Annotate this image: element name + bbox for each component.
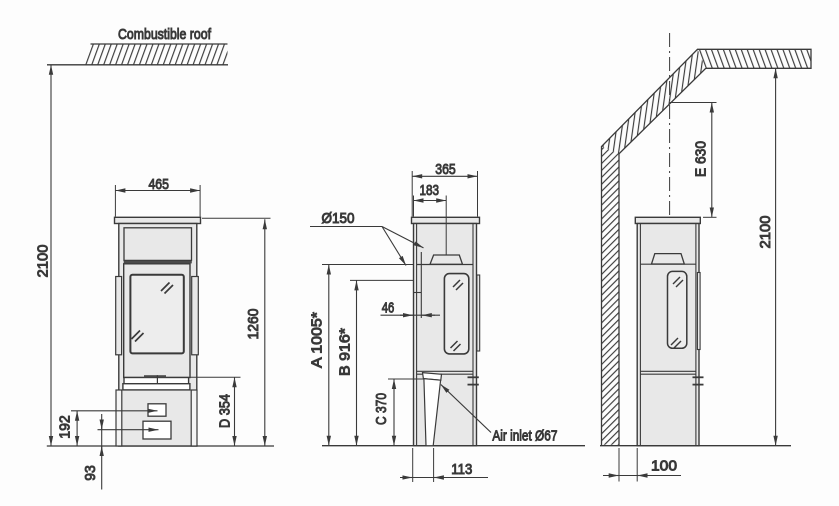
svg-text:E 630: E 630 bbox=[693, 141, 710, 177]
svg-text:Combustible roof: Combustible roof bbox=[118, 26, 212, 43]
svg-text:365: 365 bbox=[435, 161, 456, 178]
svg-text:B 916*: B 916* bbox=[337, 328, 354, 376]
svg-text:C 370: C 370 bbox=[373, 393, 390, 425]
svg-text:A 1005*: A 1005* bbox=[309, 312, 326, 368]
svg-text:Air inlet Ø67: Air inlet Ø67 bbox=[492, 428, 557, 445]
svg-text:192: 192 bbox=[57, 415, 74, 439]
svg-text:2100: 2100 bbox=[35, 245, 52, 278]
svg-text:183: 183 bbox=[419, 182, 439, 199]
svg-text:465: 465 bbox=[148, 176, 169, 193]
svg-text:2100: 2100 bbox=[757, 216, 774, 249]
svg-text:100: 100 bbox=[651, 458, 677, 475]
svg-text:93: 93 bbox=[82, 465, 99, 481]
svg-text:Ø150: Ø150 bbox=[322, 210, 355, 227]
svg-text:46: 46 bbox=[382, 299, 395, 316]
svg-text:D 354: D 354 bbox=[217, 394, 234, 428]
svg-text:113: 113 bbox=[451, 461, 472, 478]
svg-text:1260: 1260 bbox=[245, 309, 262, 340]
